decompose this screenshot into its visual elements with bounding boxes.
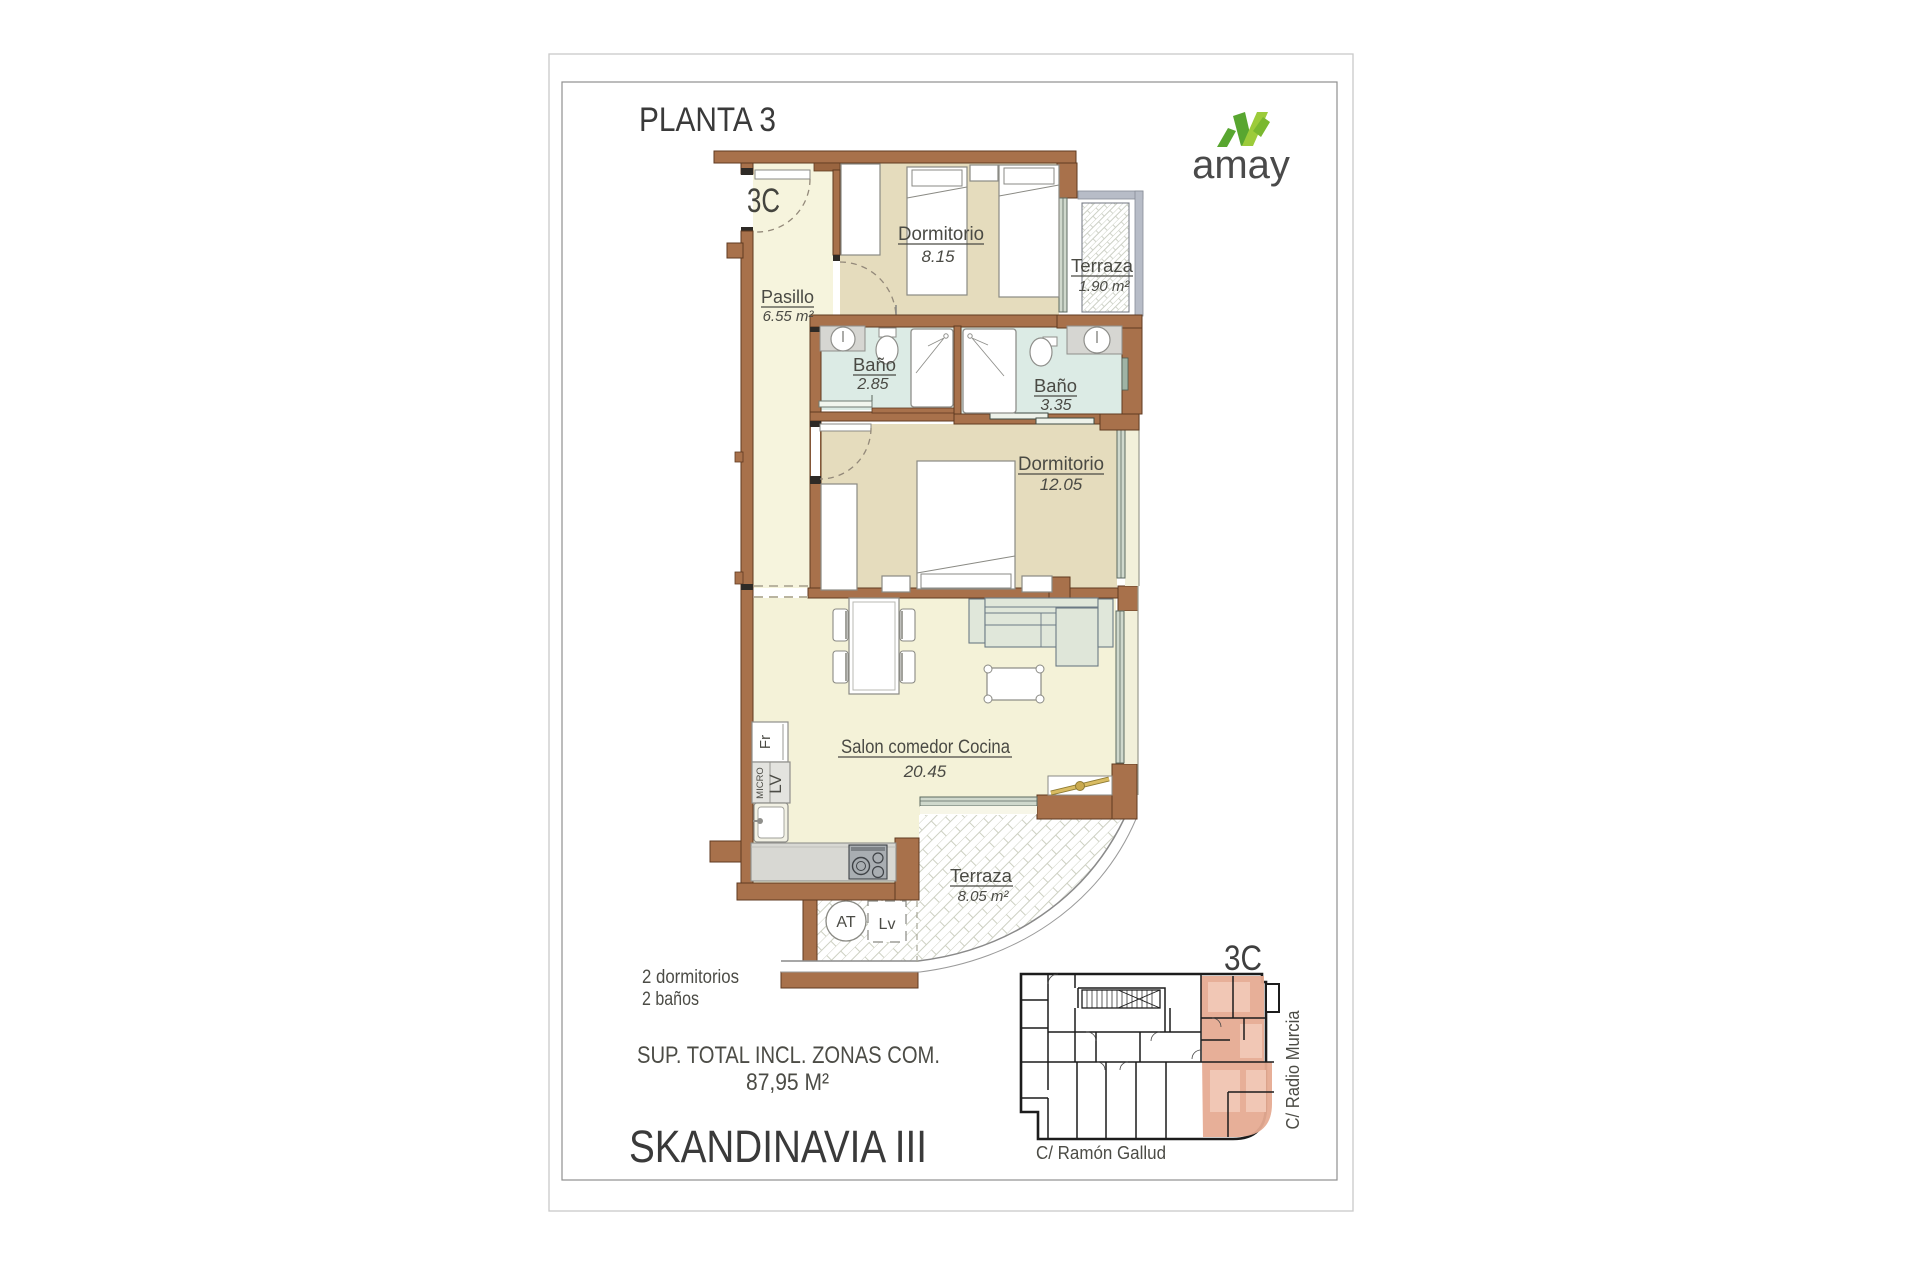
svg-text:Pasillo: Pasillo bbox=[761, 287, 814, 307]
svg-text:amay: amay bbox=[1192, 143, 1290, 187]
svg-text:PLANTA 3: PLANTA 3 bbox=[639, 101, 776, 139]
svg-text:Dormitorio: Dormitorio bbox=[898, 224, 984, 245]
svg-text:87,95 M²: 87,95 M² bbox=[746, 1069, 829, 1096]
svg-text:8.05 m²: 8.05 m² bbox=[958, 888, 1010, 905]
svg-text:2 baños: 2 baños bbox=[642, 989, 699, 1010]
svg-text:1.90 m²: 1.90 m² bbox=[1079, 278, 1131, 295]
svg-text:3C: 3C bbox=[1224, 939, 1262, 978]
svg-text:20.45: 20.45 bbox=[903, 762, 947, 781]
svg-text:3.35: 3.35 bbox=[1040, 397, 1071, 414]
svg-text:12.05: 12.05 bbox=[1040, 475, 1083, 494]
svg-text:6.55 m²: 6.55 m² bbox=[763, 308, 815, 325]
svg-text:Baño: Baño bbox=[1034, 376, 1077, 396]
svg-text:Fr: Fr bbox=[757, 735, 774, 749]
svg-text:C/ Radio Murcia: C/ Radio Murcia bbox=[1283, 1010, 1303, 1130]
svg-text:Terraza: Terraza bbox=[950, 866, 1013, 886]
svg-text:SKANDINAVIA III: SKANDINAVIA III bbox=[629, 1121, 927, 1172]
svg-text:8.15: 8.15 bbox=[921, 247, 955, 266]
svg-text:Salon comedor Cocina: Salon comedor Cocina bbox=[841, 737, 1010, 758]
svg-text:Baño: Baño bbox=[853, 355, 896, 375]
svg-text:AT: AT bbox=[836, 914, 855, 931]
svg-text:3C: 3C bbox=[747, 182, 780, 220]
svg-text:MICRO: MICRO bbox=[755, 767, 766, 799]
svg-text:C/ Ramón Gallud: C/ Ramón Gallud bbox=[1036, 1143, 1166, 1163]
svg-text:Lv: Lv bbox=[879, 916, 896, 933]
svg-text:2.85: 2.85 bbox=[856, 376, 888, 393]
svg-text:SUP. TOTAL INCL. ZONAS COM.: SUP. TOTAL INCL. ZONAS COM. bbox=[637, 1042, 940, 1069]
svg-text:LV: LV bbox=[766, 774, 785, 794]
svg-text:Terraza: Terraza bbox=[1071, 256, 1134, 276]
svg-text:2 dormitorios: 2 dormitorios bbox=[642, 967, 739, 988]
svg-text:Dormitorio: Dormitorio bbox=[1018, 454, 1104, 475]
